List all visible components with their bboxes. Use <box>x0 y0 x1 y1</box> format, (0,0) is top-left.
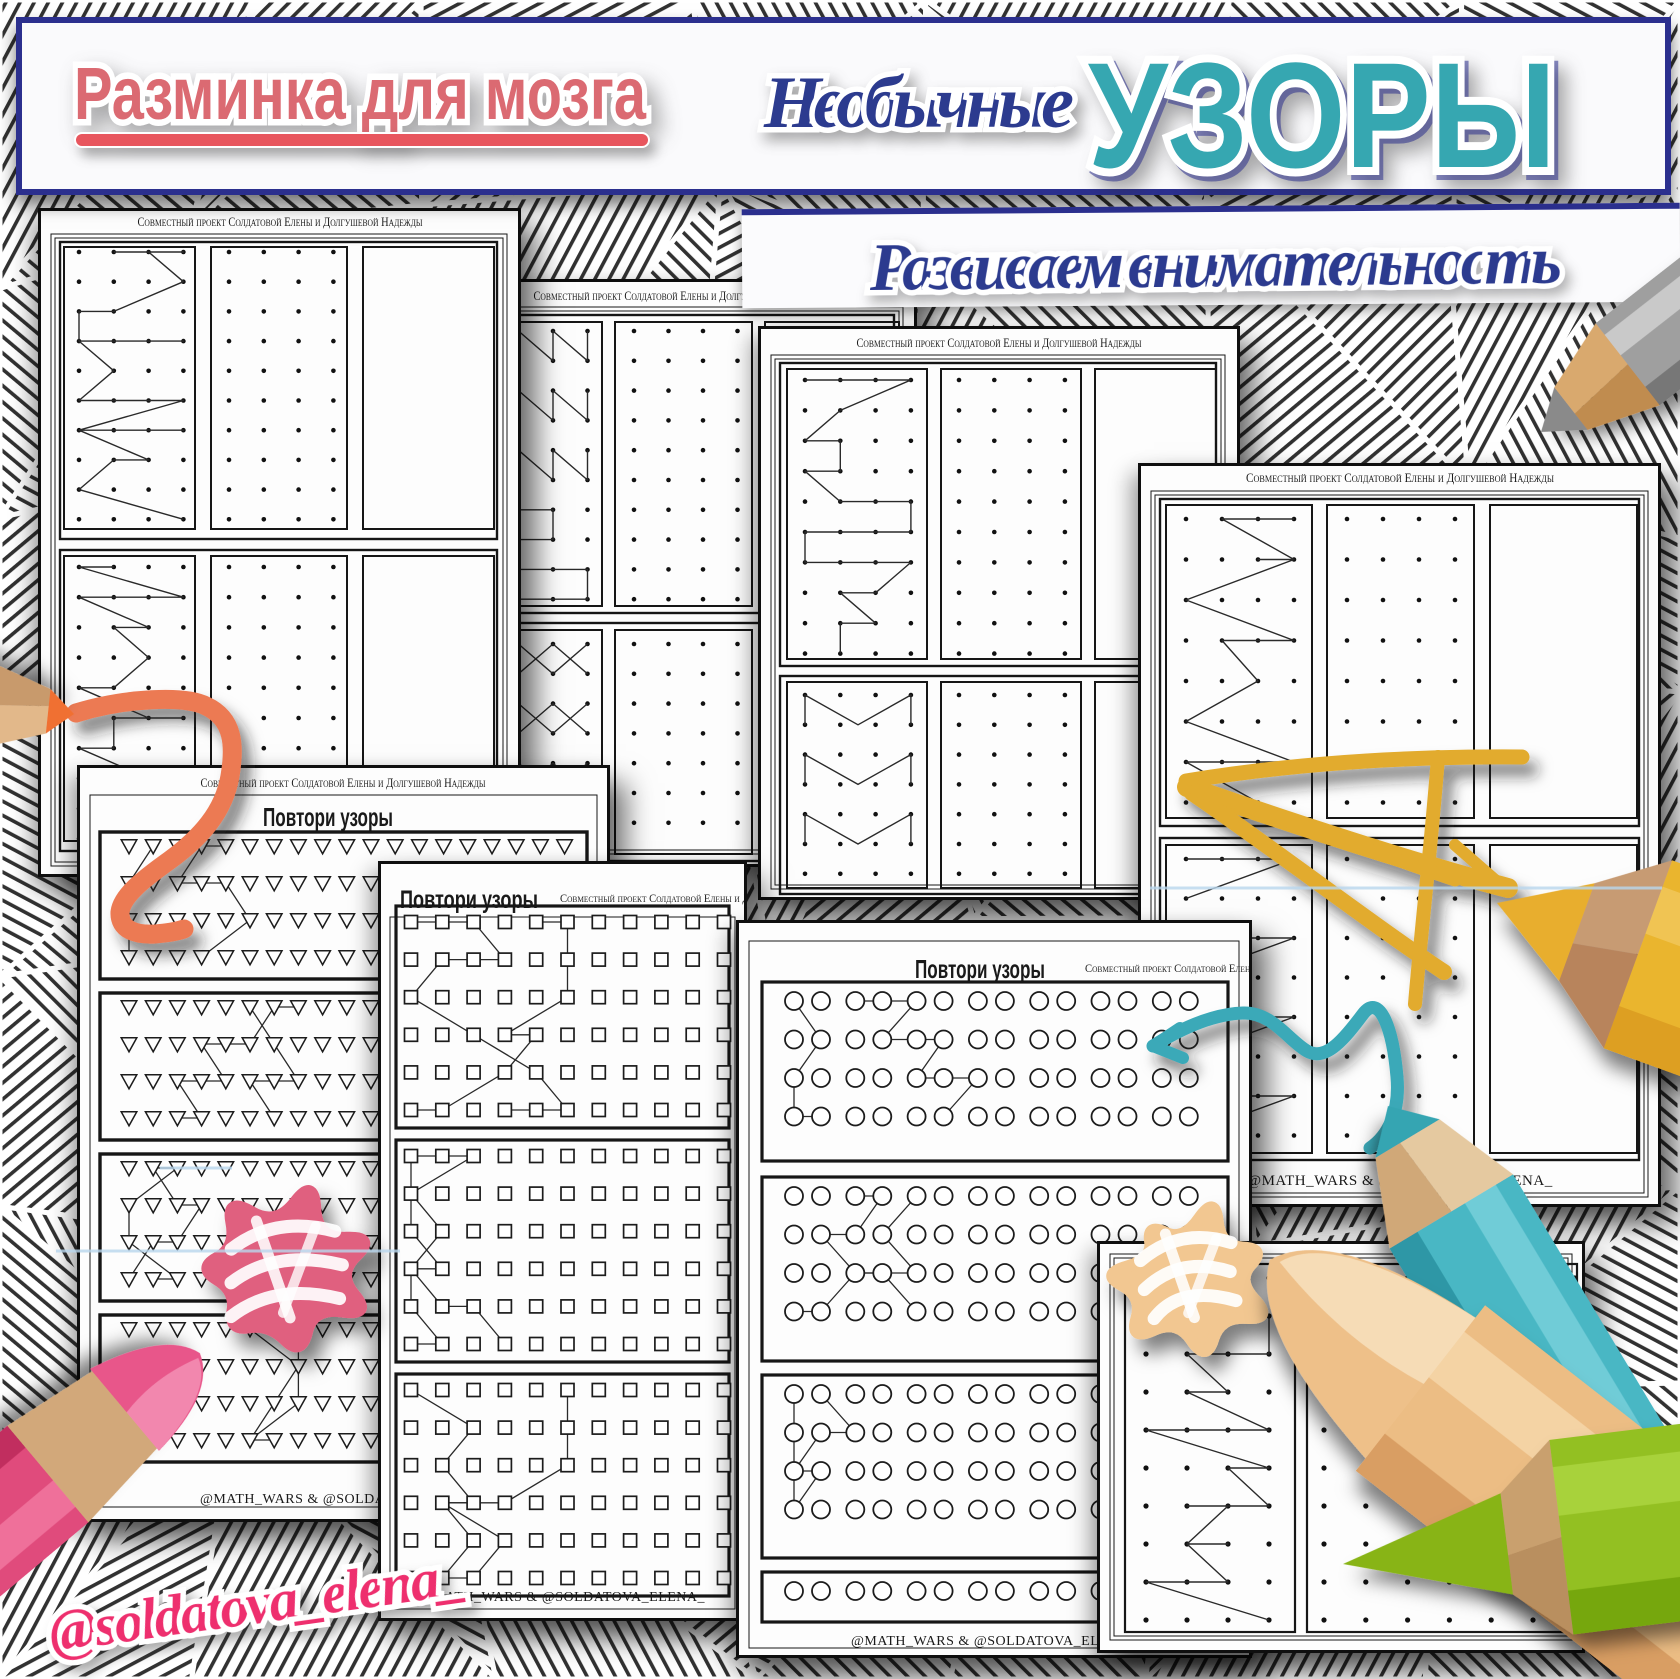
svg-text:@soldatova_elena_: @soldatova_elena_ <box>45 1542 470 1665</box>
